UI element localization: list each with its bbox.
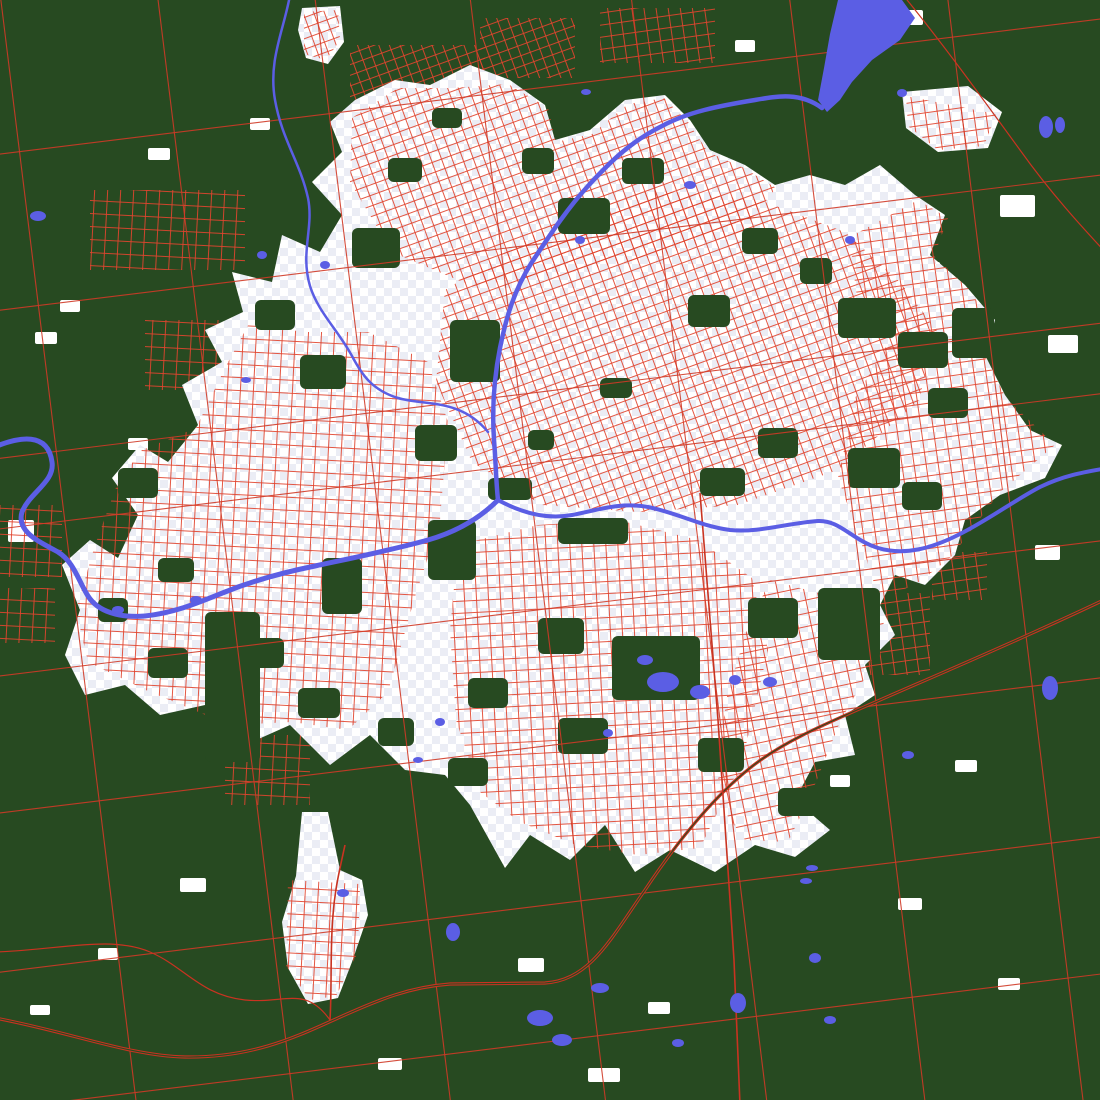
pond: [527, 1010, 553, 1026]
park: [742, 228, 778, 254]
pond: [800, 878, 812, 884]
rural-subdivision: [90, 190, 245, 270]
map-viewport[interactable]: [0, 0, 1100, 1100]
clearing-patch: [1000, 195, 1035, 217]
pond: [806, 865, 818, 871]
pond: [845, 236, 855, 244]
park: [322, 558, 362, 614]
park: [688, 295, 730, 327]
pond: [763, 677, 777, 687]
clearing-patch: [955, 760, 977, 772]
park: [818, 588, 880, 660]
pond: [446, 923, 460, 941]
clearing-patch: [1048, 335, 1078, 353]
park: [205, 612, 260, 762]
park: [898, 332, 948, 368]
clearing-patch: [180, 878, 206, 892]
park: [118, 468, 158, 498]
park: [468, 678, 508, 708]
park: [522, 148, 554, 174]
park: [902, 482, 942, 510]
park: [388, 158, 422, 182]
city-map-svg[interactable]: [0, 0, 1100, 1100]
clearing-patch: [830, 775, 850, 787]
pond: [591, 983, 609, 993]
pond: [552, 1034, 572, 1046]
park: [838, 298, 896, 338]
clearing-patch: [518, 958, 544, 972]
park: [748, 598, 798, 638]
park: [952, 308, 994, 358]
pond: [413, 757, 423, 763]
park: [255, 300, 295, 330]
pond: [729, 675, 741, 685]
pond: [435, 718, 445, 726]
park: [528, 430, 554, 450]
pond: [190, 596, 202, 604]
park: [148, 648, 188, 678]
pond: [809, 953, 821, 963]
clearing-patch: [30, 1005, 50, 1015]
park: [800, 258, 832, 284]
pond: [257, 251, 267, 259]
pond: [902, 751, 914, 759]
park: [558, 718, 608, 754]
park: [158, 558, 194, 582]
pond: [684, 181, 696, 189]
pond: [581, 89, 591, 95]
pond: [320, 261, 330, 269]
park: [378, 718, 414, 746]
pond: [637, 655, 653, 665]
rural-subdivision: [600, 8, 715, 63]
park: [778, 788, 818, 816]
pond: [1042, 676, 1058, 700]
pond: [730, 993, 746, 1013]
pond: [897, 89, 907, 97]
pond: [30, 211, 46, 221]
clearing-patch: [588, 1068, 620, 1082]
rural-subdivision: [0, 588, 55, 643]
park: [432, 108, 462, 128]
pond: [241, 377, 251, 383]
park: [415, 425, 457, 461]
pond: [112, 606, 124, 614]
pond: [647, 672, 679, 692]
pond: [672, 1039, 684, 1047]
clearing-patch: [35, 332, 57, 344]
park: [450, 320, 500, 382]
park: [300, 355, 346, 389]
rural-subdivision: [480, 18, 575, 78]
clearing-patch: [250, 118, 270, 130]
pond: [1055, 117, 1065, 133]
park: [558, 518, 628, 544]
park: [928, 388, 968, 418]
rural-subdivision: [0, 505, 62, 577]
pond: [690, 685, 710, 699]
park: [622, 158, 664, 184]
park: [448, 758, 488, 786]
pond: [824, 1016, 836, 1024]
clearing-patch: [148, 148, 170, 160]
park: [848, 448, 900, 488]
pond: [1039, 116, 1053, 138]
pond: [337, 889, 349, 897]
pond: [603, 729, 613, 737]
clearing-patch: [735, 40, 755, 52]
park: [758, 428, 798, 458]
pond: [575, 236, 585, 244]
park: [538, 618, 584, 654]
clearing-patch: [648, 1002, 670, 1014]
park: [298, 688, 340, 718]
park: [700, 468, 745, 496]
